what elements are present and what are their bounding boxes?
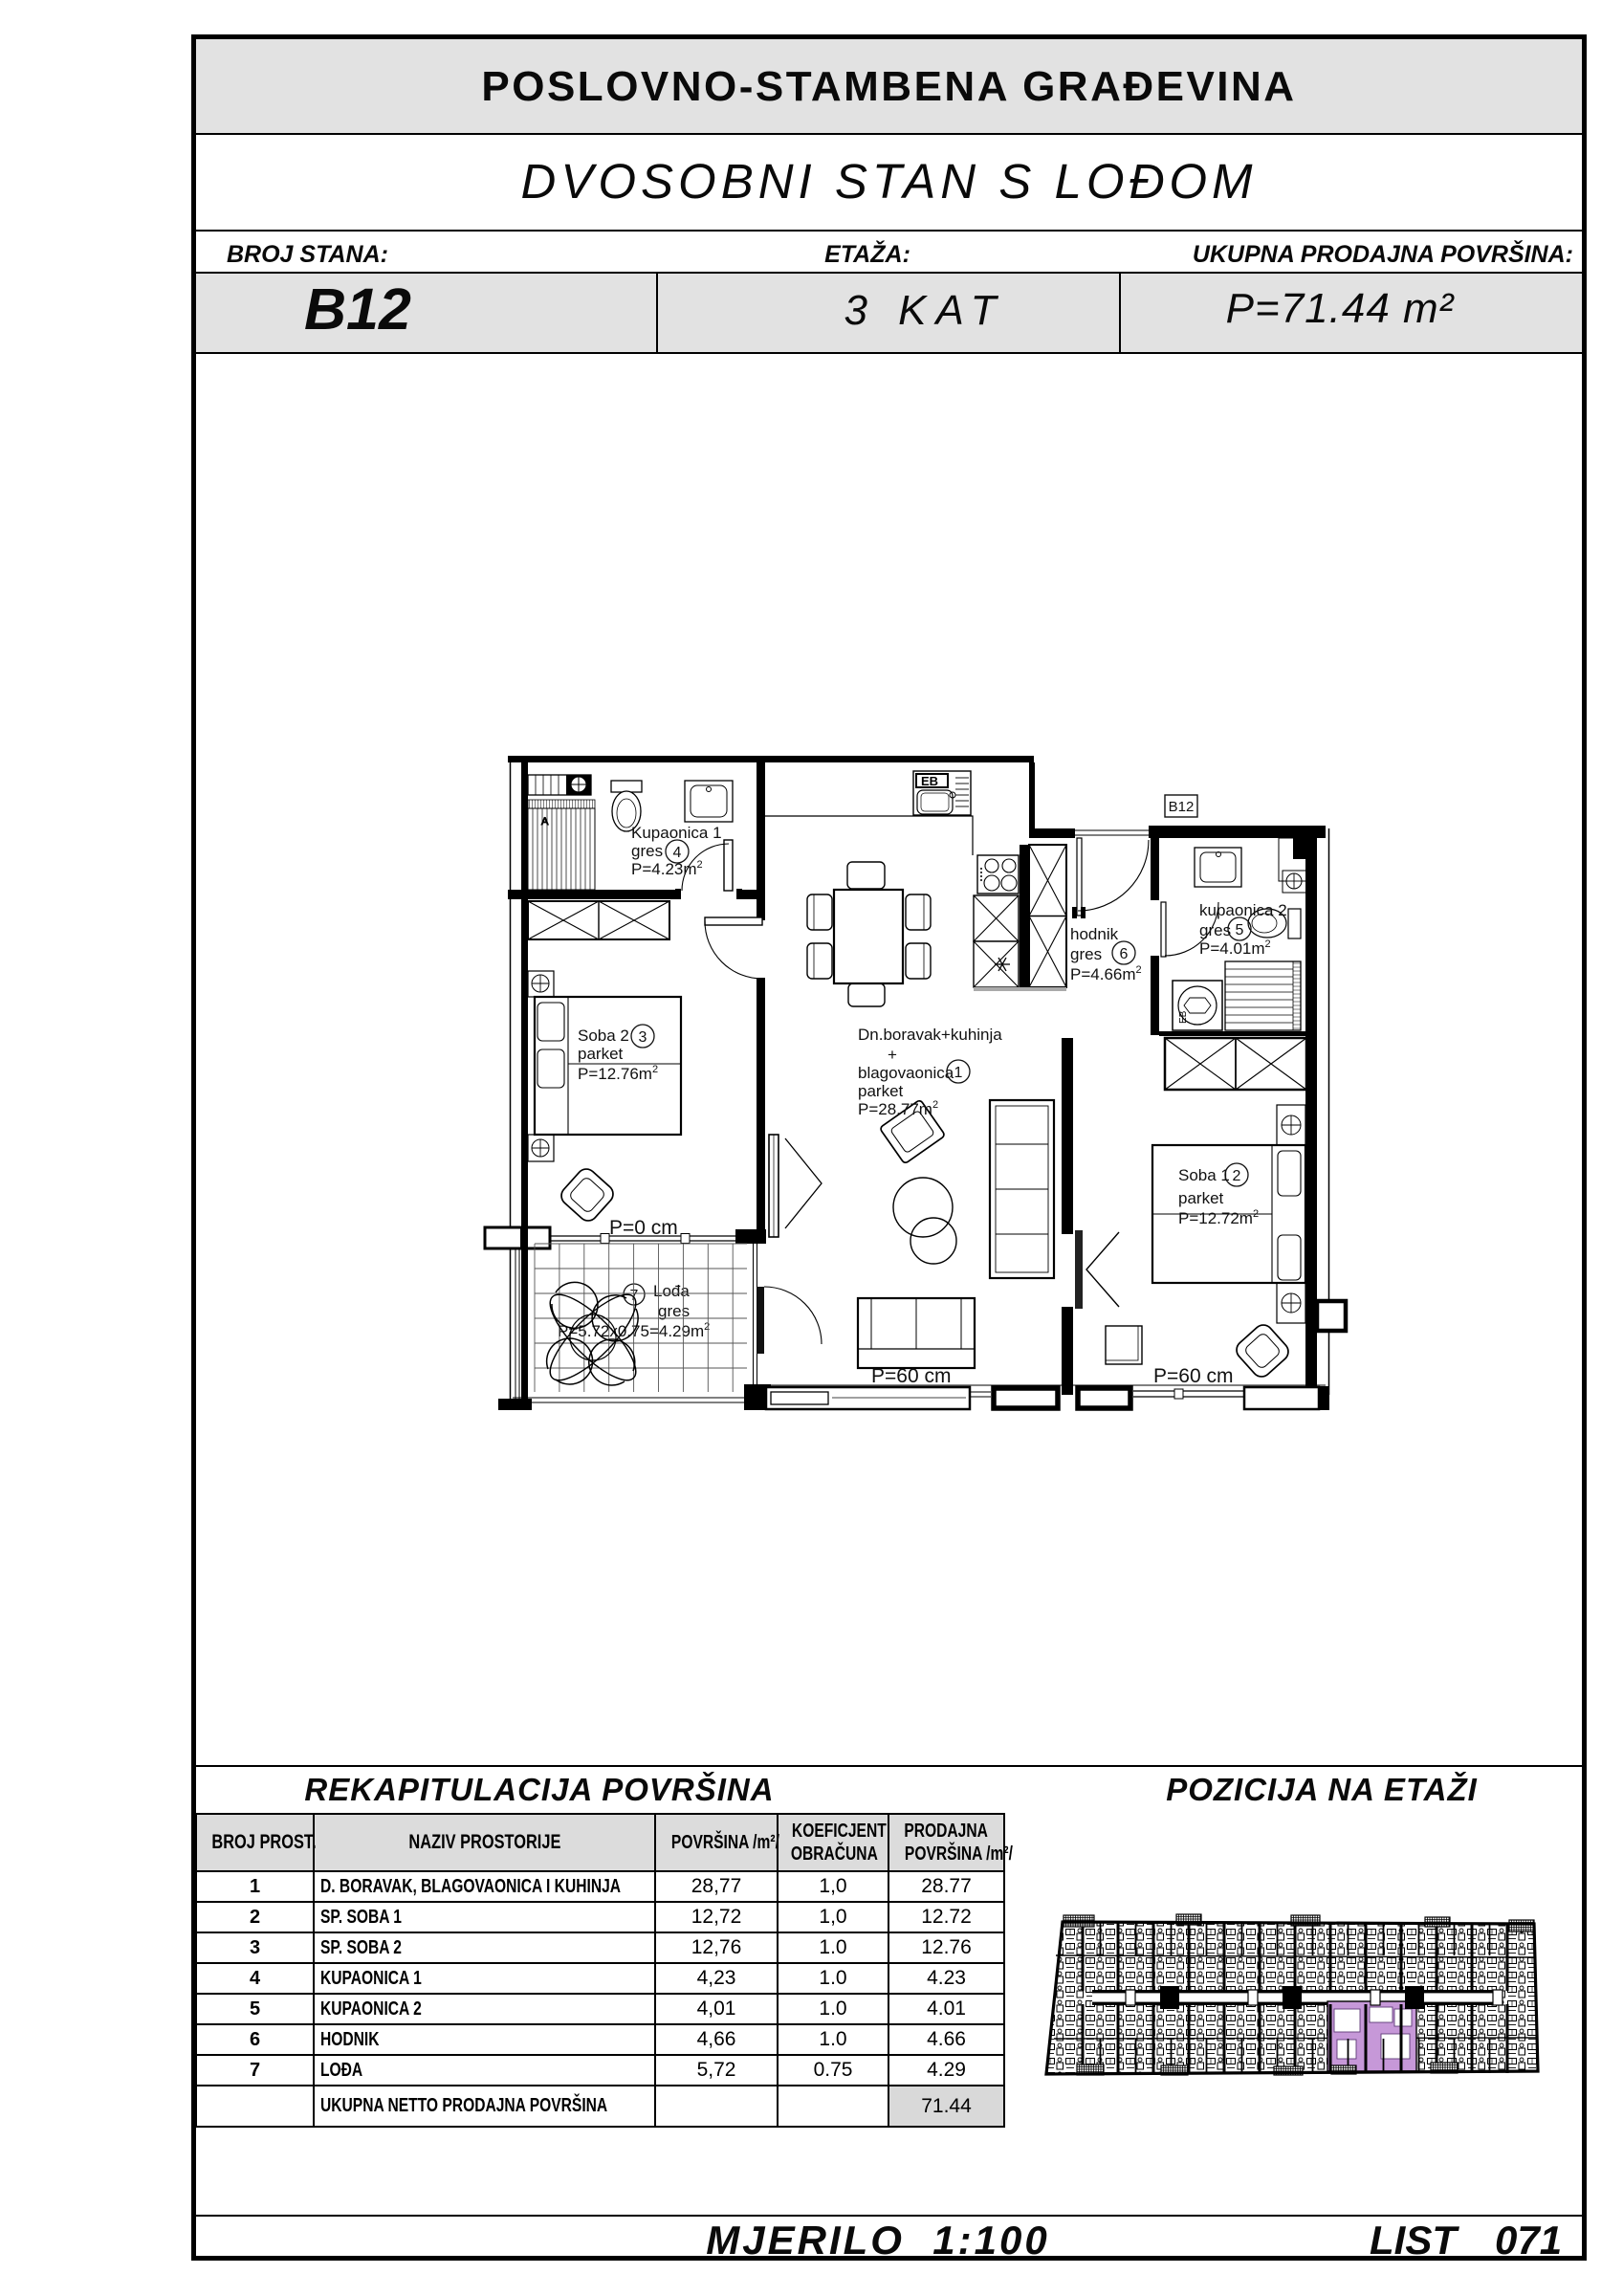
- svg-text:5: 5: [1236, 922, 1244, 938]
- svg-text:parket: parket: [1178, 1189, 1224, 1207]
- svg-text:B12: B12: [1169, 799, 1195, 815]
- svg-text:P=4.23m2: P=4.23m2: [631, 859, 703, 878]
- svg-text:blagovaonica: blagovaonica: [858, 1064, 954, 1082]
- svg-text:4: 4: [673, 845, 682, 861]
- svg-text:Soba 2: Soba 2: [578, 1027, 629, 1045]
- svg-text:kupaonica 2: kupaonica 2: [1199, 901, 1287, 919]
- svg-text:parket: parket: [858, 1082, 904, 1100]
- svg-text:+: +: [888, 1046, 897, 1064]
- svg-text:6: 6: [1120, 946, 1129, 962]
- svg-text:gres: gres: [1199, 921, 1231, 939]
- svg-text:2: 2: [1233, 1168, 1241, 1184]
- svg-text:EB: EB: [921, 774, 938, 788]
- svg-text:gres: gres: [658, 1302, 690, 1320]
- svg-text:gres: gres: [631, 842, 663, 860]
- svg-text:P=12.76m2: P=12.76m2: [578, 1064, 658, 1083]
- svg-text:P=12.72m2: P=12.72m2: [1178, 1208, 1259, 1227]
- svg-text:1: 1: [954, 1065, 963, 1081]
- svg-text:A: A: [541, 816, 549, 828]
- svg-text:hodnik: hodnik: [1070, 925, 1119, 943]
- svg-text:3: 3: [639, 1029, 647, 1046]
- svg-text:parket: parket: [578, 1045, 624, 1063]
- svg-text:P=60 cm: P=60 cm: [871, 1365, 951, 1387]
- svg-text:P=4.01m2: P=4.01m2: [1199, 938, 1271, 958]
- svg-text:Kupaonica 1: Kupaonica 1: [631, 824, 722, 842]
- svg-text:P=0 cm: P=0 cm: [609, 1217, 678, 1239]
- svg-text:Dn.boravak+kuhinja: Dn.boravak+kuhinja: [858, 1026, 1002, 1044]
- svg-text:P=60 cm: P=60 cm: [1153, 1365, 1233, 1387]
- svg-text:P=4.66m2: P=4.66m2: [1070, 964, 1142, 983]
- svg-text:P=28.77m2: P=28.77m2: [858, 1099, 938, 1118]
- svg-text:EB: EB: [1178, 1010, 1189, 1024]
- svg-text:Soba 1: Soba 1: [1178, 1166, 1230, 1184]
- svg-text:gres: gres: [1070, 945, 1102, 963]
